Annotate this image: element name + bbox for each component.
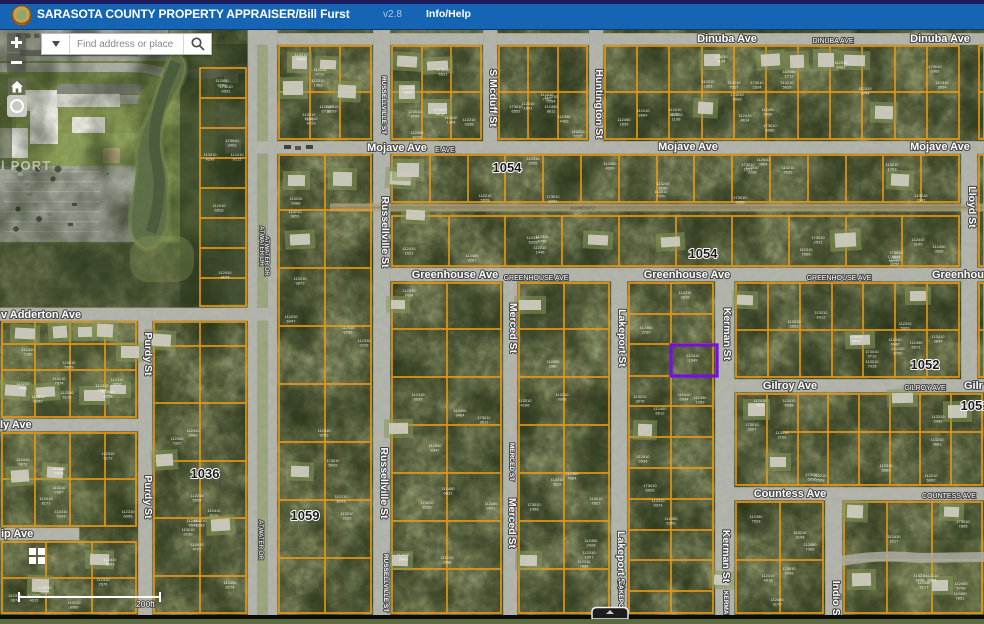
- svg-text:Kerman St: Kerman St: [720, 530, 732, 583]
- svg-text:Dinuba Ave: Dinuba Ave: [910, 33, 970, 45]
- svg-text:1054: 1054: [493, 160, 523, 175]
- svg-text:1051: 1051: [961, 398, 984, 413]
- svg-text:Greenhouse Ave: Greenhouse Ave: [412, 269, 499, 281]
- svg-text:ip Ave: ip Ave: [1, 528, 33, 540]
- svg-text:ly Ave: ly Ave: [0, 419, 32, 431]
- svg-text:GREENHOUSE AVE: GREENHOUSE AVE: [807, 275, 872, 282]
- svg-text:Gilr: Gilr: [964, 380, 984, 392]
- svg-text:GREENHOUSE AVE: GREENHOUSE AVE: [504, 275, 569, 282]
- svg-text:1052: 1052: [911, 357, 940, 372]
- svg-text:1036: 1036: [191, 466, 220, 481]
- svg-text:200ft: 200ft: [136, 599, 156, 609]
- svg-text:Indio St: Indio St: [830, 581, 842, 619]
- svg-text:Huntington St: Huntington St: [593, 69, 605, 139]
- svg-text:Countess Ave: Countess Ave: [754, 488, 827, 500]
- svg-text:Merced St: Merced St: [506, 498, 518, 549]
- svg-text:Mojave Ave: Mojave Ave: [910, 141, 970, 153]
- svg-text:Greenhouse A: Greenhouse A: [932, 269, 984, 281]
- svg-text:Dinuba Ave: Dinuba Ave: [697, 33, 757, 45]
- svg-text:1054: 1054: [689, 246, 719, 261]
- svg-text:RUSSELLVILLE ST: RUSSELLVILLE ST: [380, 76, 387, 134]
- svg-text:E AVE: E AVE: [435, 147, 455, 154]
- svg-text:Purdy St: Purdy St: [142, 332, 154, 376]
- svg-text:Mojave Ave: Mojave Ave: [367, 142, 427, 154]
- svg-text:COUNTESS AVE: COUNTESS AVE: [922, 493, 976, 500]
- svg-text:DINUBA AVE: DINUBA AVE: [812, 38, 853, 45]
- svg-text:1059: 1059: [291, 508, 320, 523]
- svg-text:Purdy St: Purdy St: [142, 475, 154, 519]
- svg-text:Greenhouse Ave: Greenhouse Ave: [644, 269, 731, 281]
- svg-text:Lloyd St: Lloyd St: [966, 186, 978, 228]
- svg-text:Mojave Ave: Mojave Ave: [658, 141, 718, 153]
- svg-text:Kerman St: Kerman St: [721, 308, 733, 361]
- svg-text:Lakeport St: Lakeport St: [616, 309, 628, 367]
- svg-text:Russellville St: Russellville St: [379, 196, 391, 268]
- svg-text:Gilroy Ave: Gilroy Ave: [763, 380, 817, 392]
- svg-text:ATWATER DR: ATWATER DR: [257, 520, 264, 560]
- svg-text:1124001872: 1124001872: [570, 206, 595, 211]
- svg-text:KERMAN ST: KERMAN ST: [722, 591, 729, 619]
- svg-text:Russellville St: Russellville St: [378, 447, 390, 519]
- svg-text:RUSSELLVILLE ST: RUSSELLVILLE ST: [382, 554, 389, 612]
- svg-text:S Mcduff St: S Mcduff St: [487, 69, 499, 127]
- svg-text:Merced St: Merced St: [507, 303, 519, 354]
- svg-text:ATWATER DR: ATWATER DR: [263, 236, 270, 276]
- svg-text:v Adderton Ave: v Adderton Ave: [1, 309, 81, 321]
- svg-text:GILROY AVE: GILROY AVE: [904, 385, 946, 392]
- svg-text:MERCED ST: MERCED ST: [508, 443, 515, 481]
